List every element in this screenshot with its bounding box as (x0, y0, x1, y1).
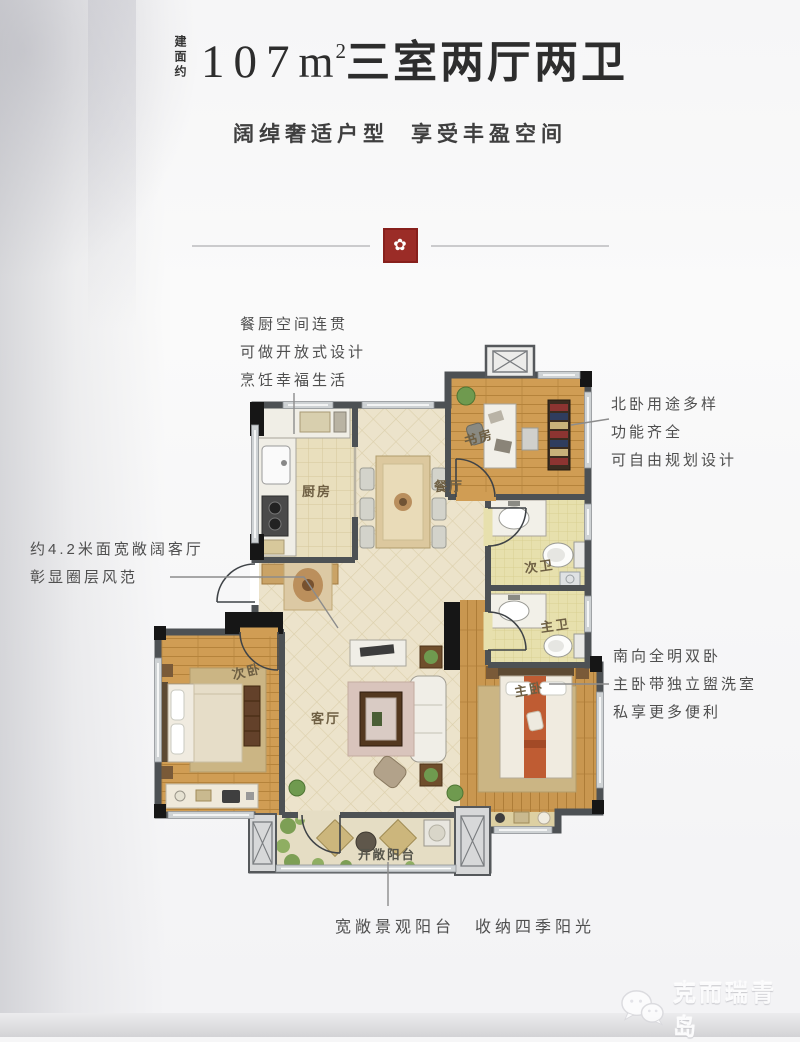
label-kitchen: 厨房 (302, 484, 332, 499)
ac-shaft-left (249, 814, 276, 872)
note-line: 可做开放式设计 (240, 339, 366, 367)
note-line: 主卧带独立盥洗室 (613, 671, 757, 699)
note-north-room: 北卧用途多样 功能齐全 可自由规划设计 (611, 391, 737, 474)
note-line: 南向全明双卧 (613, 643, 757, 671)
floor-plan: 厨房 餐厅 书房 次卫 主卫 次卧 客厅 主卧 开敞阳台 (0, 0, 800, 1037)
note-line: 私享更多便利 (613, 699, 757, 727)
note-balcony: 宽敞景观阳台 收纳四季阳光 (305, 913, 625, 943)
label-balcony: 开敞阳台 (358, 847, 416, 862)
label-living: 客厅 (311, 711, 341, 726)
entry-door (217, 563, 259, 605)
dining-table (360, 456, 446, 548)
note-living: 约4.2米面宽敞阔客厅 彰显圈层风范 (30, 536, 204, 592)
note-line: 可自由规划设计 (611, 447, 737, 475)
flue-box (486, 346, 534, 377)
note-south-rooms: 南向全明双卧 主卧带独立盥洗室 私享更多便利 (613, 643, 757, 726)
note-line: 约4.2米面宽敞阔客厅 (30, 536, 204, 564)
chat-bubbles-icon (620, 988, 665, 1028)
ac-shaft-right (455, 807, 490, 875)
label-dining: 餐厅 (433, 479, 464, 494)
watermark: 克而瑞青岛 (620, 974, 800, 1042)
note-line: 宽敞景观阳台 收纳四季阳光 (305, 913, 625, 943)
bed-second-furniture (160, 664, 266, 808)
note-line: 功能齐全 (611, 419, 737, 447)
watermark-text: 克而瑞青岛 (673, 974, 800, 1042)
entry-rug (284, 560, 332, 610)
note-line: 彰显圈层风范 (30, 564, 204, 592)
page-root: { "palette": { "page_bg": "#f7f7f8", "se… (0, 0, 800, 1037)
note-line: 烹饪幸福生活 (240, 367, 366, 395)
note-line: 北卧用途多样 (611, 391, 737, 419)
note-kitchen: 餐厨空间连贯 可做开放式设计 烹饪幸福生活 (240, 311, 366, 394)
note-line: 餐厨空间连贯 (240, 311, 366, 339)
